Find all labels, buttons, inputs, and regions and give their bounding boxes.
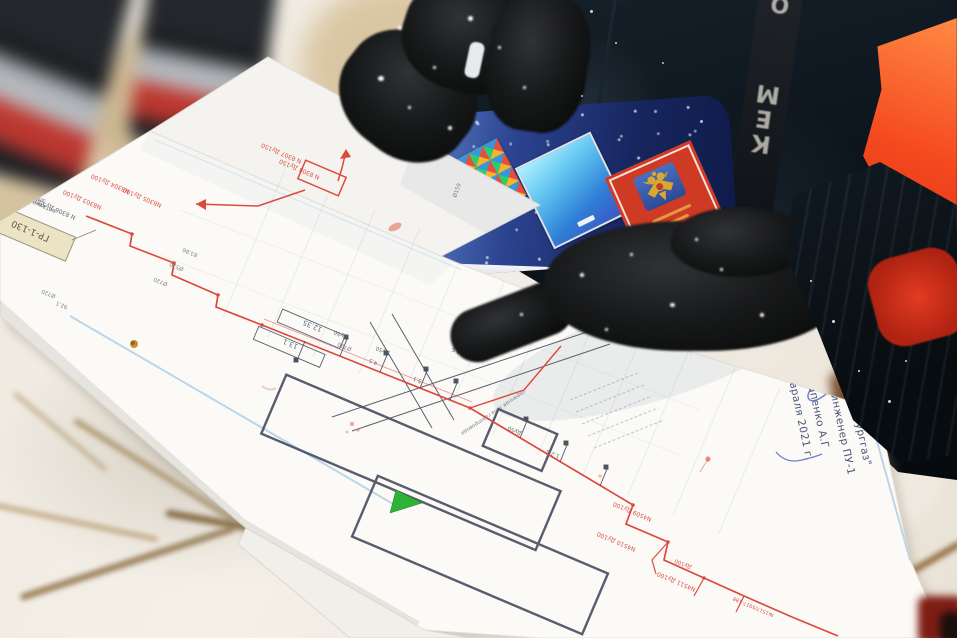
sleeve-red-patch	[862, 242, 957, 353]
glove-knuckles	[479, 0, 598, 138]
left-glove	[338, 0, 588, 158]
photo-scene: О М Е К	[0, 0, 957, 638]
jacket-corner-shadow	[940, 612, 957, 638]
leaf-debris	[130, 340, 138, 348]
